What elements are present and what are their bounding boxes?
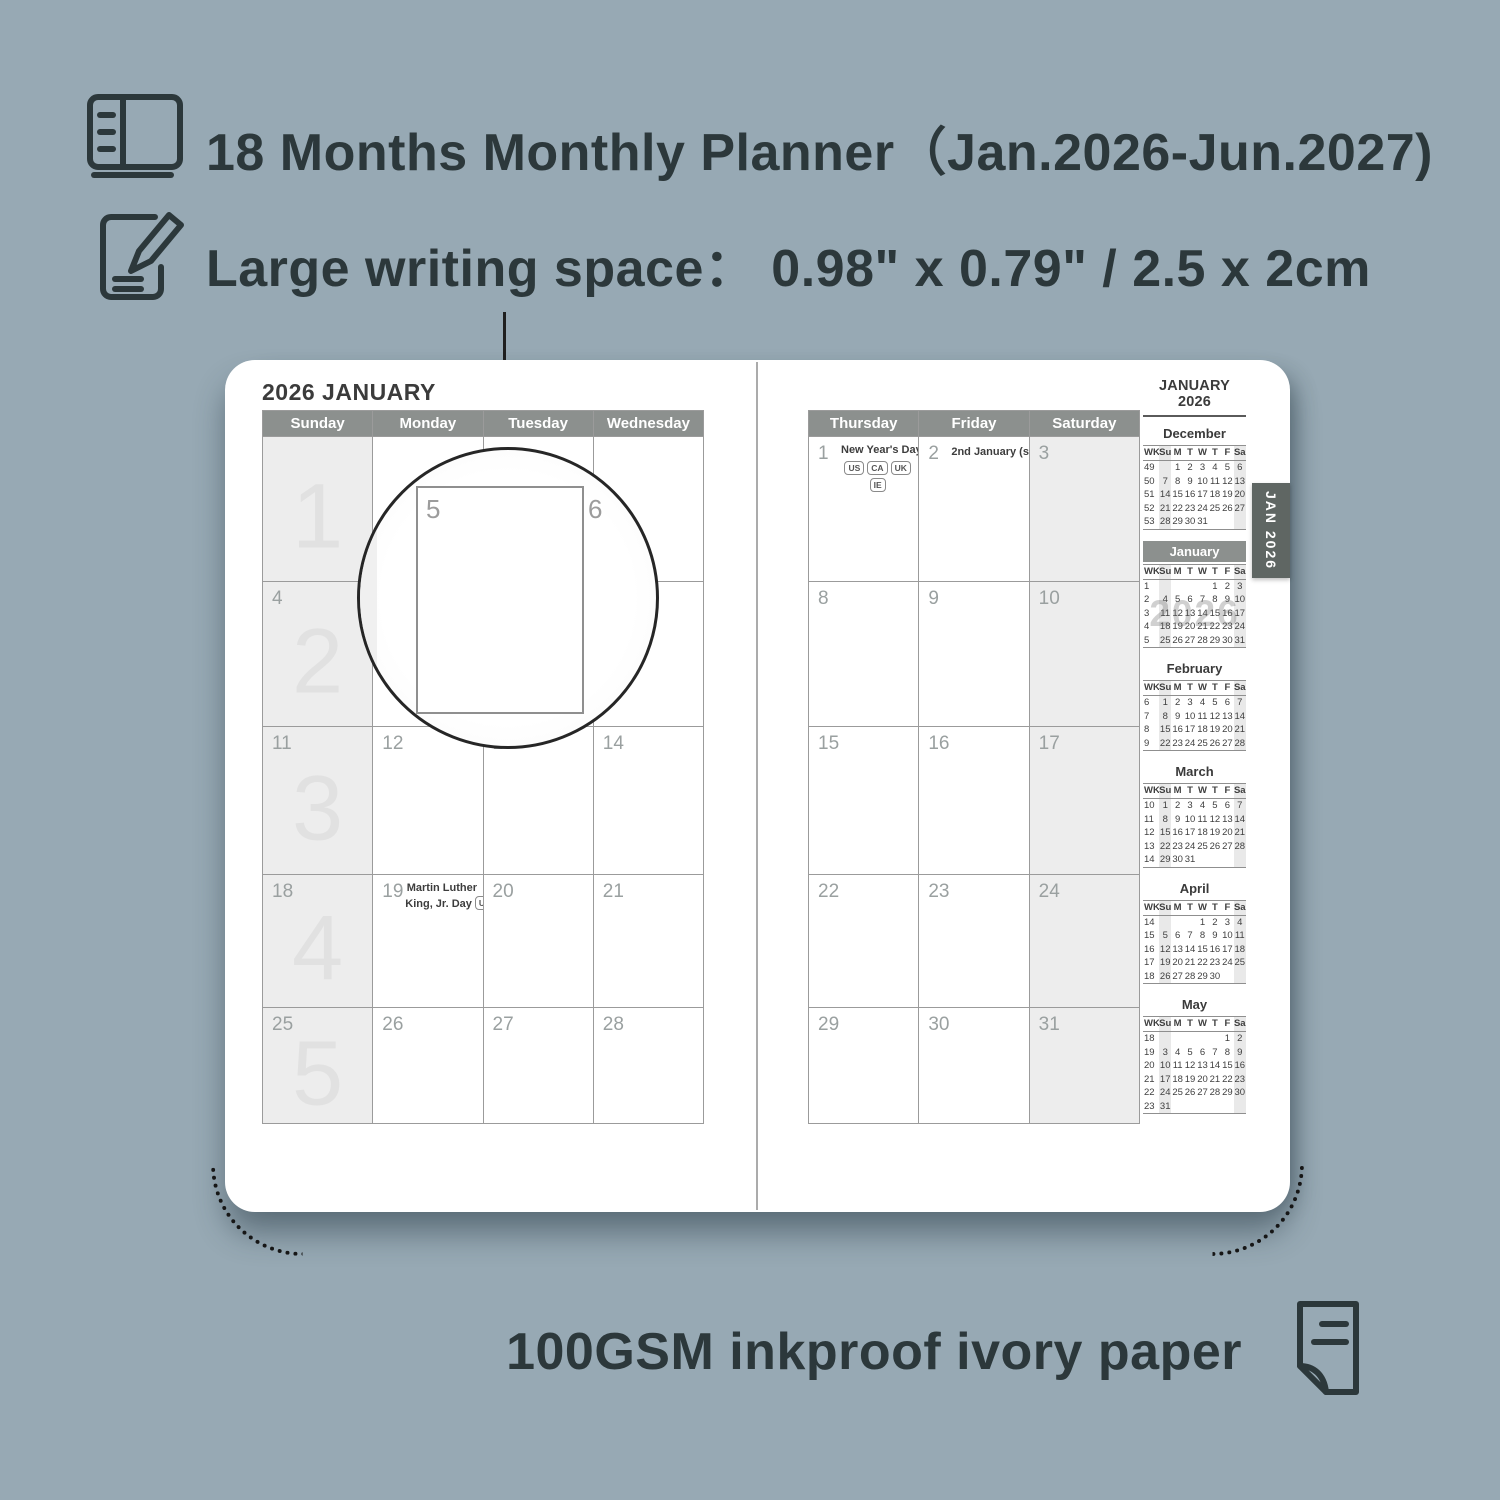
- holiday-label: 2nd January (sc.)UK: [951, 444, 1024, 460]
- mini-date: 23: [1209, 956, 1221, 970]
- mini-date: 7: [1159, 475, 1171, 489]
- mini-date: 20: [1234, 488, 1246, 502]
- mini-date: 5: [1171, 593, 1183, 607]
- mini-date: 8: [1171, 475, 1183, 489]
- mini-month-grid: WKSuMTWTFSa14123415567891011161213141516…: [1143, 900, 1246, 985]
- mini-date: [1234, 853, 1246, 867]
- mini-date: 20: [1221, 826, 1233, 840]
- mini-date: 11: [1159, 607, 1171, 621]
- mini-date: 29: [1159, 853, 1171, 867]
- day-cell: 12: [373, 727, 482, 874]
- mini-week-number: 7: [1143, 710, 1159, 724]
- mini-date: 16: [1184, 488, 1196, 502]
- day-cell: 21: [594, 875, 703, 1007]
- mini-date: 15: [1221, 1059, 1233, 1073]
- mini-date: [1159, 916, 1171, 930]
- mini-week-number: 22: [1143, 1086, 1159, 1100]
- mini-date: 30: [1171, 853, 1183, 867]
- mini-date: 18: [1196, 723, 1208, 737]
- mini-date: 13: [1171, 943, 1183, 957]
- mini-date: 28: [1159, 515, 1171, 529]
- mini-date: [1159, 461, 1171, 475]
- date-number: 2: [928, 443, 939, 465]
- mini-dow-header: F: [1221, 783, 1233, 799]
- mini-week-number: 13: [1143, 840, 1159, 854]
- day-cell: 13: [484, 727, 593, 874]
- mini-date: 18: [1234, 943, 1246, 957]
- mini-week-number: 19: [1143, 1046, 1159, 1060]
- mini-date: 21: [1234, 826, 1246, 840]
- day-cell: 22: [809, 875, 918, 1007]
- mini-date: 27: [1184, 634, 1196, 648]
- mini-date: 7: [1209, 1046, 1221, 1060]
- mini-dow-header: W: [1196, 445, 1208, 461]
- mini-month-march: MarchWKSuMTWTFSa101234567118910111213141…: [1143, 762, 1246, 868]
- mini-date: 8: [1209, 593, 1221, 607]
- week-of-month-number: 2: [263, 615, 372, 707]
- mini-dow-header: M: [1171, 783, 1183, 799]
- mini-dow-header: WK: [1143, 783, 1159, 799]
- mini-date: 1: [1221, 1032, 1233, 1046]
- mini-date: 1: [1159, 799, 1171, 813]
- week-of-month-number: 5: [263, 1027, 372, 1119]
- day-cell: 113: [263, 727, 372, 874]
- planner-product-image: { "background_color": "#97a9b4", "accent…: [0, 0, 1500, 1500]
- mini-date: 3: [1221, 916, 1233, 930]
- mini-date: 10: [1184, 710, 1196, 724]
- mini-month-grid: WKSuMTWTFSa18121934567892010111213141516…: [1143, 1016, 1246, 1114]
- mini-dow-header: Su: [1159, 445, 1171, 461]
- mini-date: 12: [1184, 1059, 1196, 1073]
- mini-date: 31: [1196, 515, 1208, 529]
- mini-week-number: 18: [1143, 1032, 1159, 1046]
- mini-date: 12: [1171, 607, 1183, 621]
- mini-date: 29: [1209, 634, 1221, 648]
- day-cell: 26: [373, 1008, 482, 1123]
- week-of-month-number: 4: [263, 902, 372, 994]
- mini-week-number: 21: [1143, 1073, 1159, 1087]
- mini-dow-header: M: [1171, 680, 1183, 696]
- mini-date: [1159, 580, 1171, 594]
- week-of-month-number: 1: [263, 470, 372, 562]
- mini-date: 25: [1159, 634, 1171, 648]
- mini-dow-header: T: [1184, 900, 1196, 916]
- mini-date: 15: [1196, 943, 1208, 957]
- mini-date: 27: [1196, 1086, 1208, 1100]
- mini-week-number: 51: [1143, 488, 1159, 502]
- date-number: 4: [272, 588, 283, 610]
- mini-date: [1171, 580, 1183, 594]
- mini-date: 24: [1221, 956, 1233, 970]
- mini-date: 5: [1184, 1046, 1196, 1060]
- mini-dow-header: T: [1184, 680, 1196, 696]
- mini-date: [1234, 1100, 1246, 1114]
- mini-date: 17: [1184, 723, 1196, 737]
- right-month-grid: ThursdayFridaySaturday1New Year's DayUSC…: [808, 410, 1140, 1124]
- day-cell: 15: [809, 727, 918, 874]
- mini-date: 15: [1159, 723, 1171, 737]
- mini-date: 13: [1196, 1059, 1208, 1073]
- mini-date: 24: [1196, 502, 1208, 516]
- paper-icon: [1280, 1298, 1372, 1398]
- mini-date: 8: [1221, 1046, 1233, 1060]
- date-number: 14: [603, 733, 624, 755]
- magnified-date-5: 5: [426, 494, 440, 525]
- left-page-title: 2026 JANUARY: [262, 379, 436, 406]
- mini-week-number: 15: [1143, 929, 1159, 943]
- mini-date: 23: [1171, 840, 1183, 854]
- book-spine: [756, 362, 758, 1210]
- mini-date: [1184, 1032, 1196, 1046]
- mini-date: 16: [1209, 943, 1221, 957]
- mini-dow-header: M: [1171, 1016, 1183, 1032]
- mini-dow-header: WK: [1143, 564, 1159, 580]
- mini-date: 21: [1209, 1073, 1221, 1087]
- mini-dow-header: WK: [1143, 900, 1159, 916]
- mini-date: 14: [1196, 607, 1208, 621]
- mini-date: 3: [1159, 1046, 1171, 1060]
- mini-dow-header: WK: [1143, 680, 1159, 696]
- holiday-label: Martin LutherKing, Jr. DayUS: [405, 882, 478, 912]
- day-cell: 255: [263, 1008, 372, 1123]
- date-number: 10: [1039, 588, 1060, 610]
- mini-date: 10: [1196, 475, 1208, 489]
- date-number: 16: [928, 733, 949, 755]
- mini-dow-header: Su: [1159, 900, 1171, 916]
- mini-week-number: 14: [1143, 916, 1159, 930]
- magnified-writing-cell: [416, 486, 584, 714]
- mini-date: 2: [1171, 696, 1183, 710]
- mini-dow-header: W: [1196, 564, 1208, 580]
- month-tab: JAN 2026: [1252, 483, 1290, 578]
- date-number: 11: [272, 733, 292, 755]
- mini-dow-header: T: [1209, 900, 1221, 916]
- mini-date: 26: [1184, 1086, 1196, 1100]
- mini-date: 2: [1171, 799, 1183, 813]
- date-number: 20: [493, 881, 514, 903]
- mini-date: 22: [1221, 1073, 1233, 1087]
- mini-date: [1209, 853, 1221, 867]
- mini-date: 24: [1234, 620, 1246, 634]
- mini-date: 8: [1159, 813, 1171, 827]
- day-cell: 42: [263, 582, 372, 726]
- mini-date: 6: [1184, 593, 1196, 607]
- mini-date: 7: [1234, 799, 1246, 813]
- mini-date: 27: [1234, 502, 1246, 516]
- mini-dow-header: M: [1171, 900, 1183, 916]
- mini-dow-header: Sa: [1234, 1016, 1246, 1032]
- mini-month-grid: WKSuMTWTFSa49123456507891011121351141516…: [1143, 445, 1246, 530]
- mini-date: 17: [1184, 826, 1196, 840]
- mini-month-name: January: [1143, 541, 1246, 562]
- date-number: 29: [818, 1014, 839, 1036]
- mini-date: 23: [1171, 737, 1183, 751]
- mini-dow-header: Sa: [1234, 783, 1246, 799]
- mini-date: [1184, 916, 1196, 930]
- mini-date: 5: [1159, 929, 1171, 943]
- magnified-sunday-strip: [360, 450, 377, 746]
- mini-date: 13: [1184, 607, 1196, 621]
- day-cell: 22nd January (sc.)UK: [919, 437, 1028, 581]
- mini-date: [1221, 1100, 1233, 1114]
- mini-month-december: DecemberWKSuMTWTFSa491234565078910111213…: [1143, 424, 1246, 530]
- day-header: Tuesday: [484, 411, 593, 436]
- mini-week-number: 8: [1143, 723, 1159, 737]
- day-cell: 23: [919, 875, 1028, 1007]
- mini-month-grid: WKSuMTWTFSa61234567789101112131481516171…: [1143, 680, 1246, 751]
- pencil-note-icon: [95, 205, 190, 303]
- mini-date: [1196, 580, 1208, 594]
- mini-date: 31: [1159, 1100, 1171, 1114]
- mini-date: 11: [1196, 813, 1208, 827]
- day-cell: 27: [484, 1008, 593, 1123]
- mini-dow-header: T: [1184, 1016, 1196, 1032]
- mini-date: [1159, 1032, 1171, 1046]
- country-badge: UK: [891, 461, 911, 475]
- holiday-label: New Year's DayUSCAUKIE: [841, 444, 914, 492]
- mini-date: 3: [1184, 696, 1196, 710]
- mini-date: 20: [1171, 956, 1183, 970]
- day-cell: 1New Year's DayUSCAUKIE: [809, 437, 918, 581]
- mini-month-grid: WKSuMTWTFSa11232456789103111213141516174…: [1143, 564, 1246, 649]
- mini-dow-header: Su: [1159, 1016, 1171, 1032]
- planner-book: 2026 JANUARY SundayMondayTuesdayWednesda…: [225, 360, 1290, 1212]
- mini-week-number: 5: [1143, 634, 1159, 648]
- mini-week-number: 52: [1143, 502, 1159, 516]
- mini-month-name: April: [1143, 879, 1246, 898]
- mini-date: 14: [1209, 1059, 1221, 1073]
- mini-date: 11: [1171, 1059, 1183, 1073]
- mini-date: 2: [1234, 1032, 1246, 1046]
- mini-date: 4: [1196, 696, 1208, 710]
- feature-writing-space: Large writing space： 0.98" x 0.79" / 2.5…: [206, 226, 1371, 301]
- mini-date: 3: [1196, 461, 1208, 475]
- date-number: 28: [603, 1014, 624, 1036]
- mini-date: 2: [1209, 916, 1221, 930]
- mini-date: 25: [1171, 1086, 1183, 1100]
- mini-date: 18: [1209, 488, 1221, 502]
- mini-month-name: May: [1143, 995, 1246, 1014]
- mini-week-number: 1: [1143, 580, 1159, 594]
- mini-date: 24: [1159, 1086, 1171, 1100]
- mini-dow-header: Sa: [1234, 445, 1246, 461]
- mini-date: 21: [1159, 502, 1171, 516]
- mini-date: 24: [1184, 840, 1196, 854]
- date-number: 12: [382, 733, 403, 755]
- day-cell: 8: [809, 582, 918, 726]
- mini-date: 7: [1196, 593, 1208, 607]
- mini-date: 16: [1171, 826, 1183, 840]
- mini-dow-header: T: [1209, 445, 1221, 461]
- day-cell: 20: [484, 875, 593, 1007]
- mini-date: 1: [1209, 580, 1221, 594]
- country-badge: US: [475, 896, 483, 910]
- mini-dow-header: W: [1196, 1016, 1208, 1032]
- mini-date: 28: [1209, 1086, 1221, 1100]
- mini-date: 22: [1171, 502, 1183, 516]
- mini-date: 4: [1209, 461, 1221, 475]
- mini-date: 30: [1221, 634, 1233, 648]
- mini-dow-header: W: [1196, 900, 1208, 916]
- mini-date: 25: [1196, 840, 1208, 854]
- mini-date: 3: [1184, 799, 1196, 813]
- mini-date: 9: [1221, 593, 1233, 607]
- mini-date: 23: [1234, 1073, 1246, 1087]
- date-number: 3: [1039, 443, 1050, 465]
- mini-date: 5: [1209, 696, 1221, 710]
- mini-date: [1234, 970, 1246, 984]
- mini-date: 7: [1184, 929, 1196, 943]
- day-header: Monday: [373, 411, 482, 436]
- mini-date: 9: [1209, 929, 1221, 943]
- mini-date: 19: [1159, 956, 1171, 970]
- mini-date: 5: [1209, 799, 1221, 813]
- mini-date: 15: [1209, 607, 1221, 621]
- mini-date: [1184, 580, 1196, 594]
- mini-date: 28: [1234, 840, 1246, 854]
- mini-date: [1171, 1032, 1183, 1046]
- day-cell: 9: [919, 582, 1028, 726]
- mini-date: 15: [1159, 826, 1171, 840]
- country-badge: US: [844, 461, 864, 475]
- mini-date: 19: [1171, 620, 1183, 634]
- mini-dow-header: T: [1209, 783, 1221, 799]
- mini-dow-header: T: [1209, 564, 1221, 580]
- mini-date: 17: [1221, 943, 1233, 957]
- mini-date: 30: [1184, 515, 1196, 529]
- day-cell: 3: [1030, 437, 1139, 581]
- mini-week-number: 18: [1143, 970, 1159, 984]
- day-cell: 19Martin LutherKing, Jr. DayUS: [373, 875, 482, 1007]
- day-header: Friday: [919, 411, 1028, 436]
- mini-date: 14: [1234, 813, 1246, 827]
- day-cell: 30: [919, 1008, 1028, 1123]
- mini-date: 18: [1171, 1073, 1183, 1087]
- mini-date: 2: [1221, 580, 1233, 594]
- mini-date: 1: [1196, 916, 1208, 930]
- mini-date: 4: [1171, 1046, 1183, 1060]
- mini-date: 21: [1234, 723, 1246, 737]
- mini-date: 12: [1159, 943, 1171, 957]
- mini-week-number: 6: [1143, 696, 1159, 710]
- mini-date: [1209, 1032, 1221, 1046]
- day-header: Wednesday: [594, 411, 703, 436]
- mini-date: 9: [1184, 475, 1196, 489]
- mini-date: 11: [1196, 710, 1208, 724]
- day-cell: 28: [594, 1008, 703, 1123]
- mini-date: 1: [1171, 461, 1183, 475]
- mini-dow-header: Su: [1159, 783, 1171, 799]
- mini-month-name: February: [1143, 659, 1246, 678]
- mini-date: 18: [1159, 620, 1171, 634]
- mini-date: 13: [1234, 475, 1246, 489]
- mini-week-number: 23: [1143, 1100, 1159, 1114]
- mini-dow-header: WK: [1143, 445, 1159, 461]
- mini-date: 31: [1184, 853, 1196, 867]
- mini-date: [1209, 515, 1221, 529]
- mini-date: 13: [1221, 813, 1233, 827]
- mini-date: 10: [1159, 1059, 1171, 1073]
- mini-month-february: FebruaryWKSuMTWTFSa612345677891011121314…: [1143, 659, 1246, 751]
- mini-date: 28: [1196, 634, 1208, 648]
- mini-date: 14: [1159, 488, 1171, 502]
- mini-date: 6: [1221, 799, 1233, 813]
- mini-dow-header: F: [1221, 680, 1233, 696]
- mini-date: 22: [1209, 620, 1221, 634]
- day-cell: 31: [1030, 1008, 1139, 1123]
- day-cell: 16: [919, 727, 1028, 874]
- mini-week-number: 3: [1143, 607, 1159, 621]
- mini-date: 11: [1234, 929, 1246, 943]
- mini-date: 21: [1196, 620, 1208, 634]
- mini-date: [1221, 853, 1233, 867]
- date-number: 22: [818, 881, 839, 903]
- country-badge: IE: [870, 478, 886, 492]
- mini-week-number: 14: [1143, 853, 1159, 867]
- mini-dow-header: F: [1221, 1016, 1233, 1032]
- mini-date: 27: [1221, 737, 1233, 751]
- date-number: 30: [928, 1014, 949, 1036]
- mini-date: 14: [1234, 710, 1246, 724]
- mini-dow-header: WK: [1143, 1016, 1159, 1032]
- date-number: 24: [1039, 881, 1060, 903]
- mini-week-number: 49: [1143, 461, 1159, 475]
- country-badges: USCAUKIE: [841, 461, 914, 492]
- mini-date: 6: [1234, 461, 1246, 475]
- mini-date: 26: [1159, 970, 1171, 984]
- mini-date: 4: [1159, 593, 1171, 607]
- mini-date: 6: [1171, 929, 1183, 943]
- mini-date: 20: [1196, 1073, 1208, 1087]
- date-number: 1: [818, 443, 829, 465]
- notebook-icon: [85, 92, 185, 180]
- date-number: 26: [382, 1014, 403, 1036]
- mini-dow-header: Su: [1159, 680, 1171, 696]
- mini-dow-header: Sa: [1234, 564, 1246, 580]
- mini-date: [1209, 1100, 1221, 1114]
- mini-date: 15: [1171, 488, 1183, 502]
- mini-date: 1: [1159, 696, 1171, 710]
- mini-date: 30: [1234, 1086, 1246, 1100]
- feature-months-range: 18 Months Monthly Planner（Jan.2026-Jun.2…: [206, 110, 1433, 185]
- date-number: 9: [928, 588, 939, 610]
- mini-dow-header: W: [1196, 783, 1208, 799]
- mini-month-may: MayWKSuMTWTFSa18121934567892010111213141…: [1143, 995, 1246, 1114]
- day-cell: 24: [1030, 875, 1139, 1007]
- week-of-month-number: 3: [263, 762, 372, 854]
- magnifier-circle: 5 6: [357, 447, 659, 749]
- mini-date: 20: [1221, 723, 1233, 737]
- mini-date: 4: [1234, 916, 1246, 930]
- mini-dow-header: M: [1171, 445, 1183, 461]
- mini-date: 21: [1184, 956, 1196, 970]
- date-number: 21: [603, 881, 624, 903]
- mini-week-number: 20: [1143, 1059, 1159, 1073]
- day-cell: 10: [1030, 582, 1139, 726]
- mini-date: [1171, 1100, 1183, 1114]
- mini-date: 20: [1184, 620, 1196, 634]
- mini-date: [1196, 853, 1208, 867]
- mini-date: 22: [1159, 737, 1171, 751]
- mini-date: 22: [1159, 840, 1171, 854]
- mini-month-april: AprilWKSuMTWTFSa141234155678910111612131…: [1143, 879, 1246, 985]
- mini-date: 9: [1234, 1046, 1246, 1060]
- mini-week-number: 53: [1143, 515, 1159, 529]
- mini-date: 8: [1159, 710, 1171, 724]
- mini-dow-header: Sa: [1234, 680, 1246, 696]
- mini-date: 17: [1234, 607, 1246, 621]
- mini-month-name: March: [1143, 762, 1246, 781]
